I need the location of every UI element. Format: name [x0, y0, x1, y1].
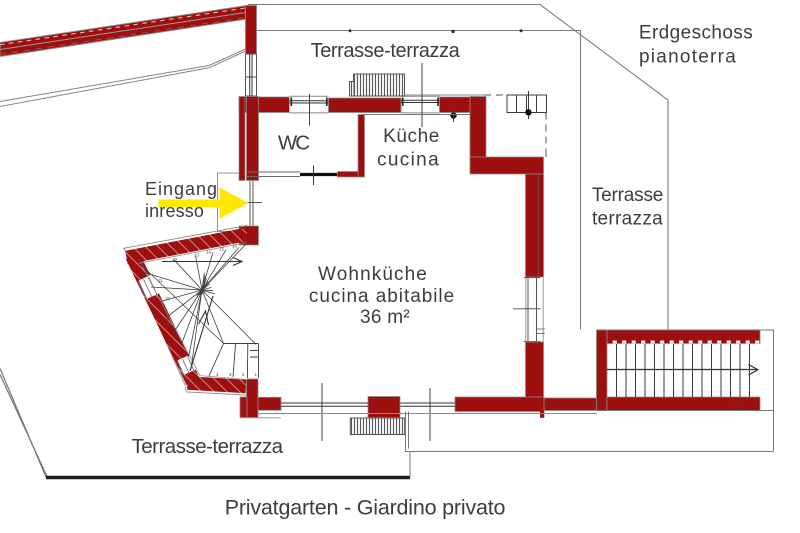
svg-text:inresso: inresso: [145, 201, 204, 221]
svg-text:Terrasse-terrazza: Terrasse-terrazza: [132, 435, 284, 458]
svg-text:13: 13: [194, 253, 200, 258]
svg-text:12: 12: [172, 257, 178, 262]
svg-text:16: 16: [232, 244, 238, 249]
svg-text:Terrasse: Terrasse: [592, 185, 663, 206]
svg-text:WC: WC: [278, 132, 310, 155]
svg-text:cucina abitabile: cucina abitabile: [309, 286, 455, 307]
svg-text:pianoterra: pianoterra: [639, 47, 737, 68]
svg-text:15: 15: [219, 247, 225, 252]
svg-text:11: 11: [158, 278, 163, 283]
svg-text:Küche: Küche: [383, 126, 440, 147]
svg-text:17: 17: [245, 241, 251, 246]
svg-text:terrazza: terrazza: [592, 209, 663, 230]
svg-text:10: 10: [165, 296, 171, 301]
svg-text:36 m²: 36 m²: [360, 307, 410, 328]
svg-text:Terrasse-terrazza: Terrasse-terrazza: [311, 40, 461, 62]
svg-text:14: 14: [206, 250, 212, 255]
svg-text:Erdgeschoss: Erdgeschoss: [639, 23, 753, 44]
svg-text:cucina: cucina: [377, 150, 440, 171]
svg-text:Wohnküche: Wohnküche: [318, 264, 428, 285]
svg-text:Privatgarten - Giardino privat: Privatgarten - Giardino privato: [225, 496, 506, 520]
svg-text:Eingang: Eingang: [145, 179, 218, 199]
